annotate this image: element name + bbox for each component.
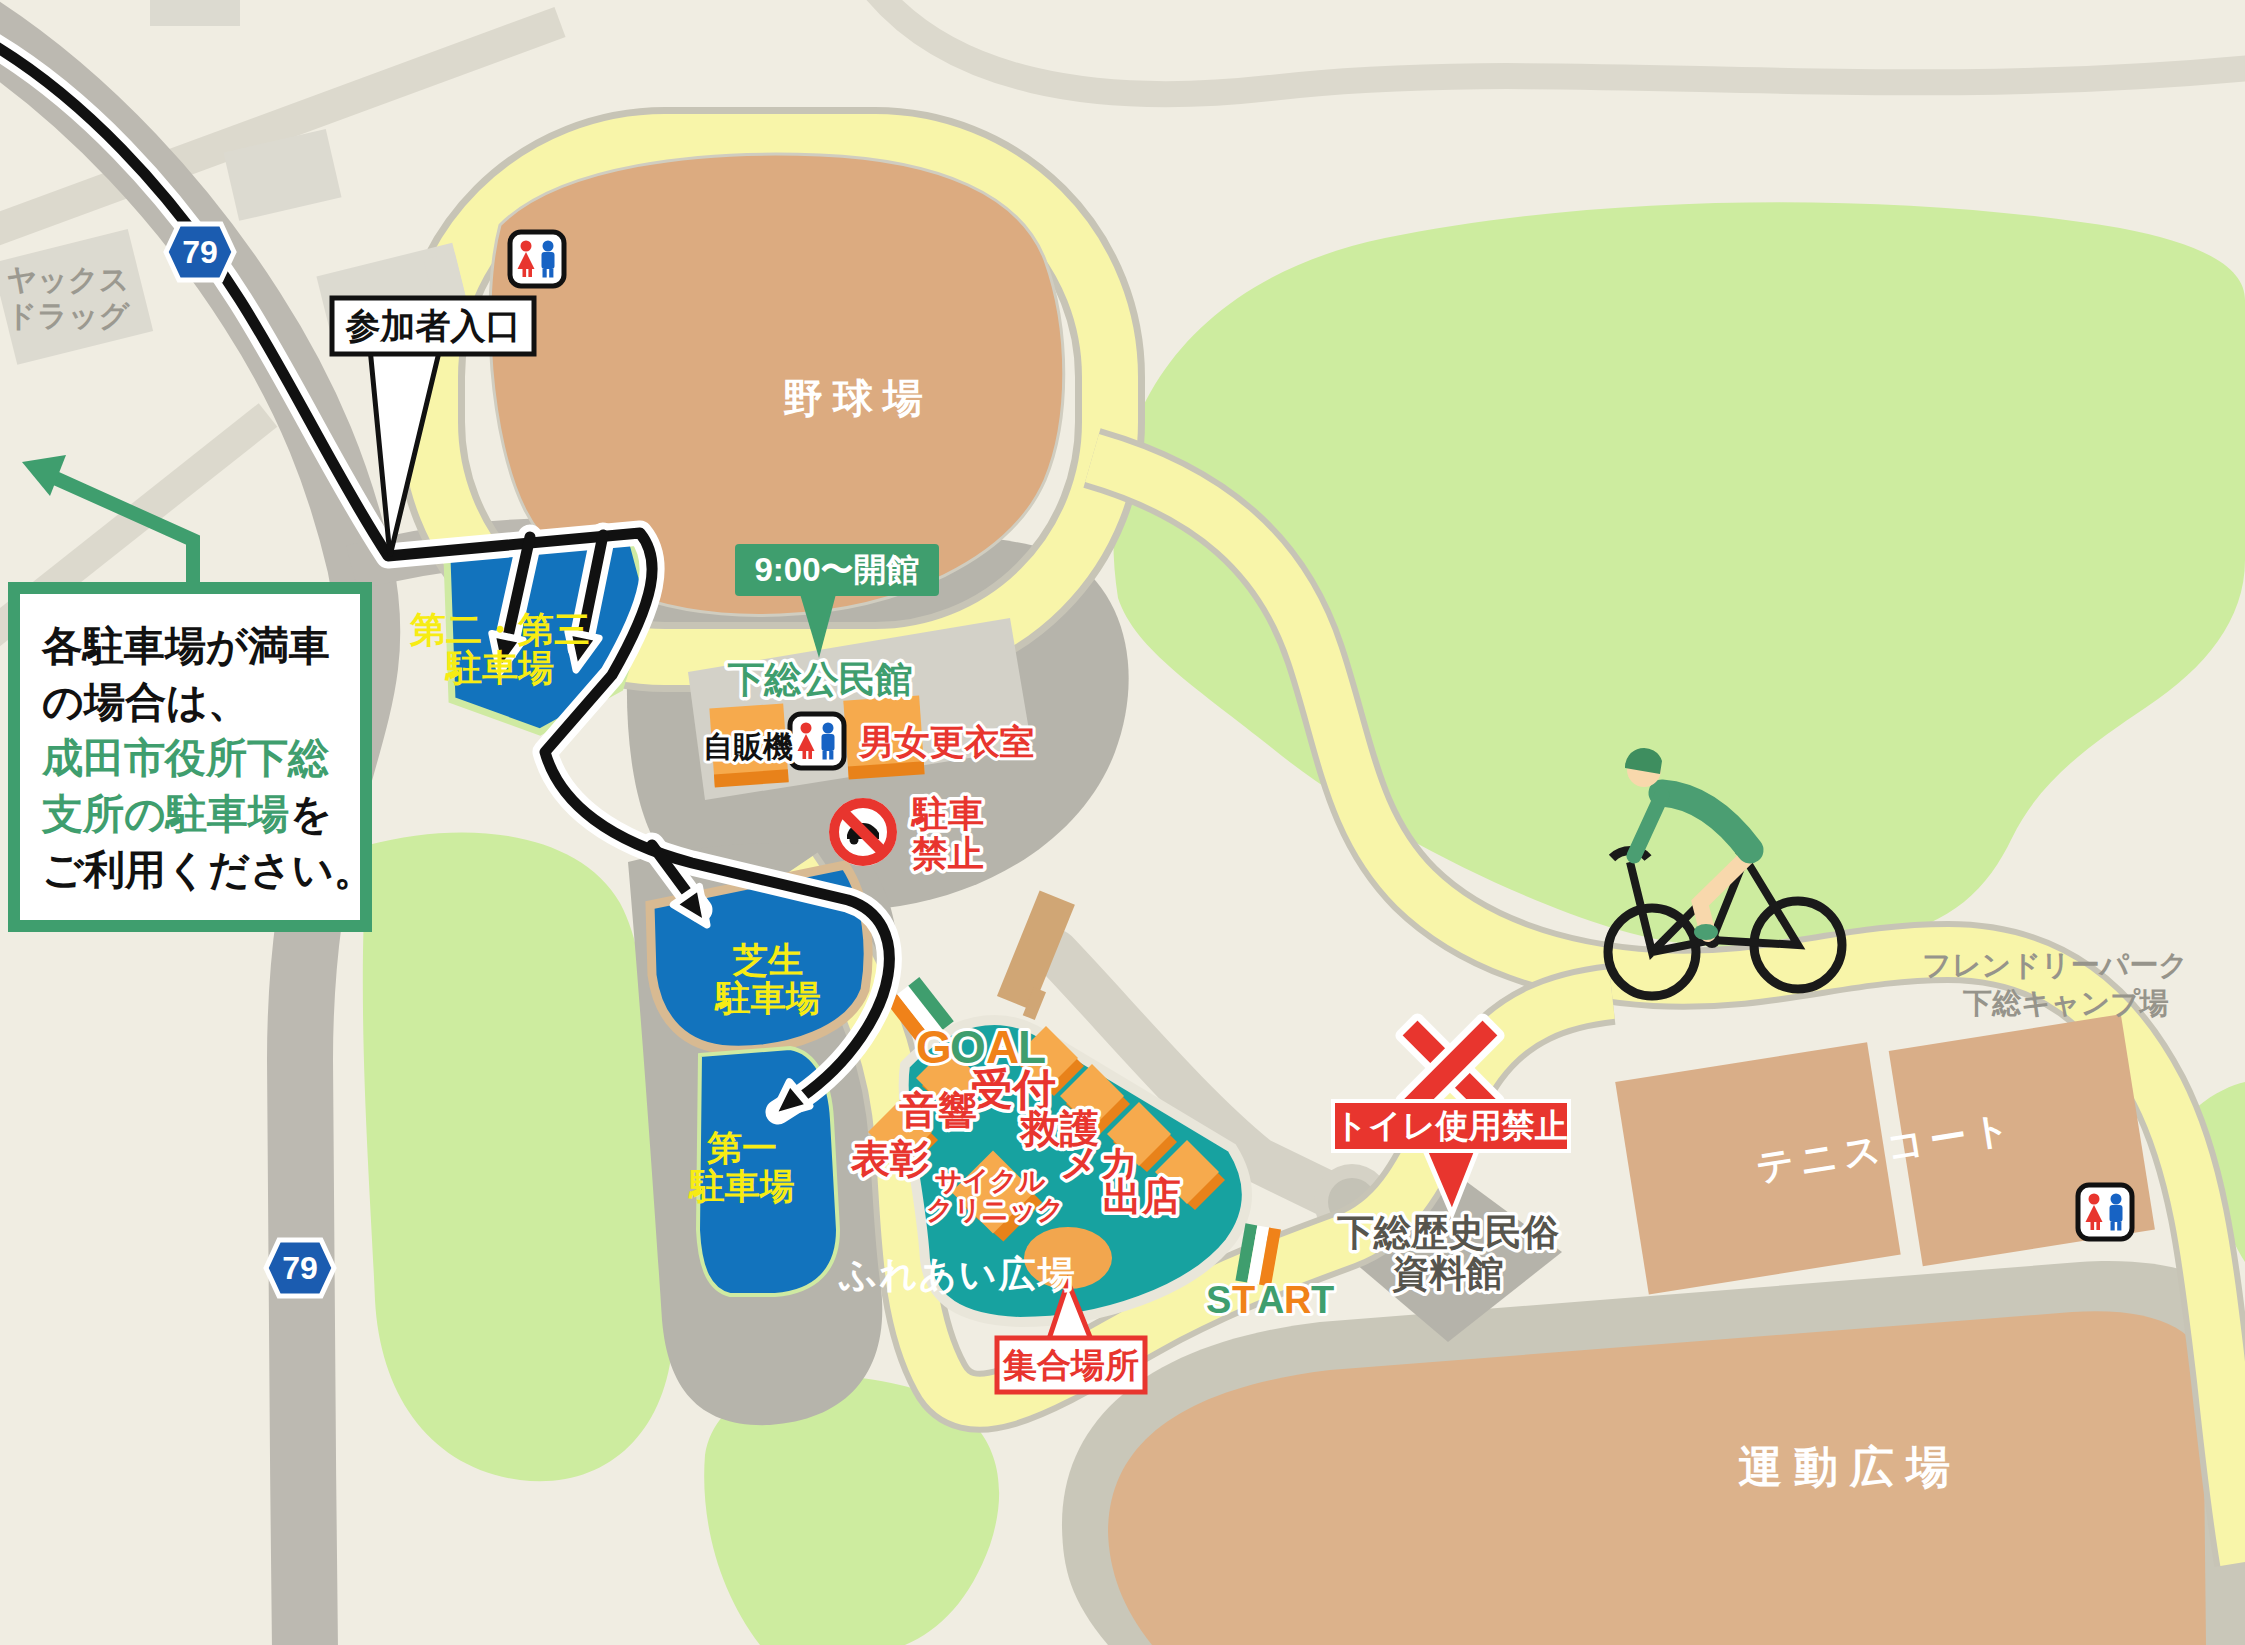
parking-lot23-label-line1: 第二・第三: [409, 609, 590, 650]
lawn-parking-label-line1: 芝生: [732, 940, 803, 979]
museum-label-line2: 資料館: [1392, 1253, 1504, 1294]
drugstore-label-line2: ドラッグ: [7, 299, 131, 332]
booths-label: 出店: [1103, 1175, 1181, 1218]
lawn-parking-label-line2: 駐車場: [714, 978, 821, 1017]
restroom-icon: [2078, 1185, 2132, 1239]
green-area-west: [363, 832, 675, 1481]
building: [150, 0, 240, 26]
friendly-park-label-line2: 下総キャンプ場: [1962, 987, 2169, 1019]
plaza-label: ふれあい広場: [838, 1254, 1076, 1295]
museum-label-line1: 下総歴史民俗: [1337, 1212, 1559, 1253]
meeting-point-label: 集合場所: [1002, 1346, 1139, 1384]
awards-label: 表彰: [850, 1137, 929, 1180]
entrance-callout-label: 参加者入口: [345, 306, 521, 345]
notice-line4-suffix: を: [290, 791, 332, 837]
no-parking-icon: [829, 798, 897, 866]
cycle-clinic-label-line2: クリニック: [926, 1195, 1064, 1225]
start-letter: S: [1206, 1279, 1231, 1321]
start-letter: T: [1311, 1279, 1334, 1321]
notice-line5: ご利用ください。: [42, 847, 375, 893]
notice-line3: 成田市役所下総: [41, 735, 330, 781]
sports-field-label: 運動広場: [1738, 1442, 1962, 1491]
reception-label: 受付: [970, 1065, 1056, 1113]
route79-badge-north: 79: [166, 224, 234, 280]
drugstore-label-line1: ヤックス: [7, 263, 130, 296]
notice-line1: 各駐車場が満車: [41, 623, 330, 669]
parking-lot23-label-line2: 駐車場: [444, 647, 554, 688]
goal-letter: G: [916, 1021, 952, 1073]
notice-line4-highlight: 支所の駐車場: [41, 791, 289, 837]
start-letter: T: [1232, 1279, 1255, 1321]
restroom-icon: [510, 232, 564, 286]
sound-label: 音響: [899, 1089, 977, 1132]
start-letter: A: [1257, 1279, 1284, 1321]
rider-shoe: [1694, 924, 1718, 940]
opening-hours-label: 9:00〜開館: [754, 551, 919, 588]
parking-lot1-label-line2: 駐車場: [688, 1166, 795, 1205]
baseball-field-label: 野球場: [783, 376, 933, 420]
cycle-clinic-label-line1: サイクル: [935, 1166, 1046, 1196]
route79-badge-south: 79: [266, 1240, 334, 1296]
event-access-map: 79 79 参加者入口 各駐車場が満車 の場合は、 成田市役所下総 支所の駐車場…: [0, 0, 2245, 1645]
route-badge-number: 79: [182, 234, 218, 270]
changing-room-label: 男女更衣室: [858, 722, 1035, 761]
friendly-park-label-line1: フレンドリーパーク: [1922, 949, 2188, 981]
restroom-icon: [790, 714, 844, 768]
start-letter: R: [1284, 1279, 1311, 1321]
no-parking-label-line1: 駐車: [910, 793, 984, 834]
vending-machine-label: 自販機: [703, 730, 793, 763]
notice-line2: の場合は、: [42, 679, 249, 725]
start-label: S T A R T: [1206, 1279, 1334, 1321]
parking-lot1-label-line1: 第一: [707, 1128, 777, 1167]
no-parking-label-line2: 禁止: [911, 833, 984, 874]
car-wheel: [850, 836, 859, 845]
route-badge-number: 79: [282, 1250, 318, 1286]
toilet-ban-label: トイレ使用禁止: [1334, 1107, 1567, 1144]
community-hall-label: 下総公民館: [728, 659, 913, 700]
